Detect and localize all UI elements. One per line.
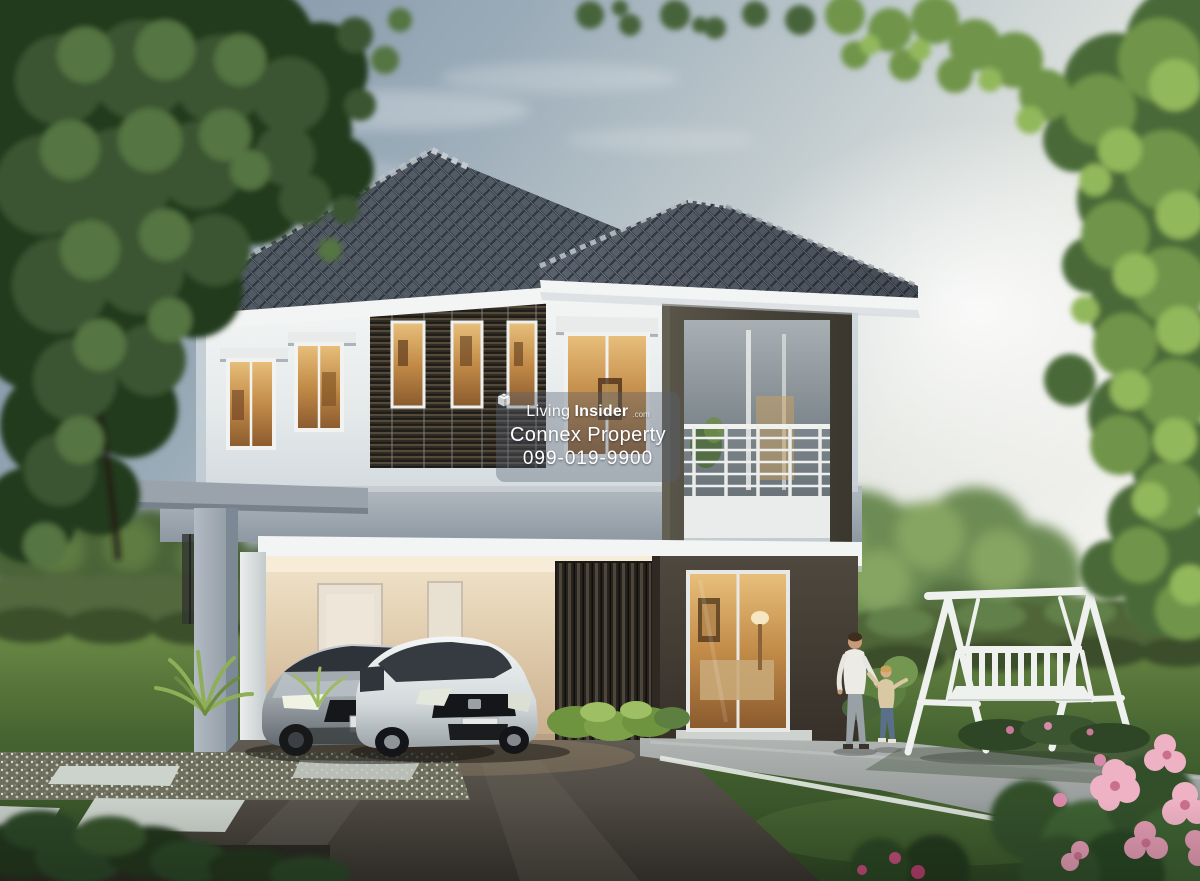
house-render-scene: LivingInsider.com Connex Property 099-01…	[0, 0, 1200, 881]
watermark-brand-light: Living	[526, 404, 570, 420]
living-insider-cube-logo	[496, 392, 512, 408]
watermark-company: Connex Property	[510, 424, 666, 447]
vignette	[0, 800, 1200, 881]
watermark-brand-bold: Insider	[575, 404, 629, 420]
watermark-phone: 099-019-9900	[523, 448, 653, 470]
living-room-glass-door	[688, 572, 788, 730]
sofa	[700, 660, 774, 700]
floor-lamp	[751, 611, 769, 625]
watermark-brand-tld: .com	[632, 411, 649, 419]
swing-bench	[948, 646, 1092, 700]
balcony-section	[662, 296, 852, 548]
hatchback-emblem	[468, 699, 481, 709]
watermark-brand-row: LivingInsider.com	[526, 404, 649, 420]
watermark: LivingInsider.com Connex Property 099-01…	[496, 392, 680, 482]
